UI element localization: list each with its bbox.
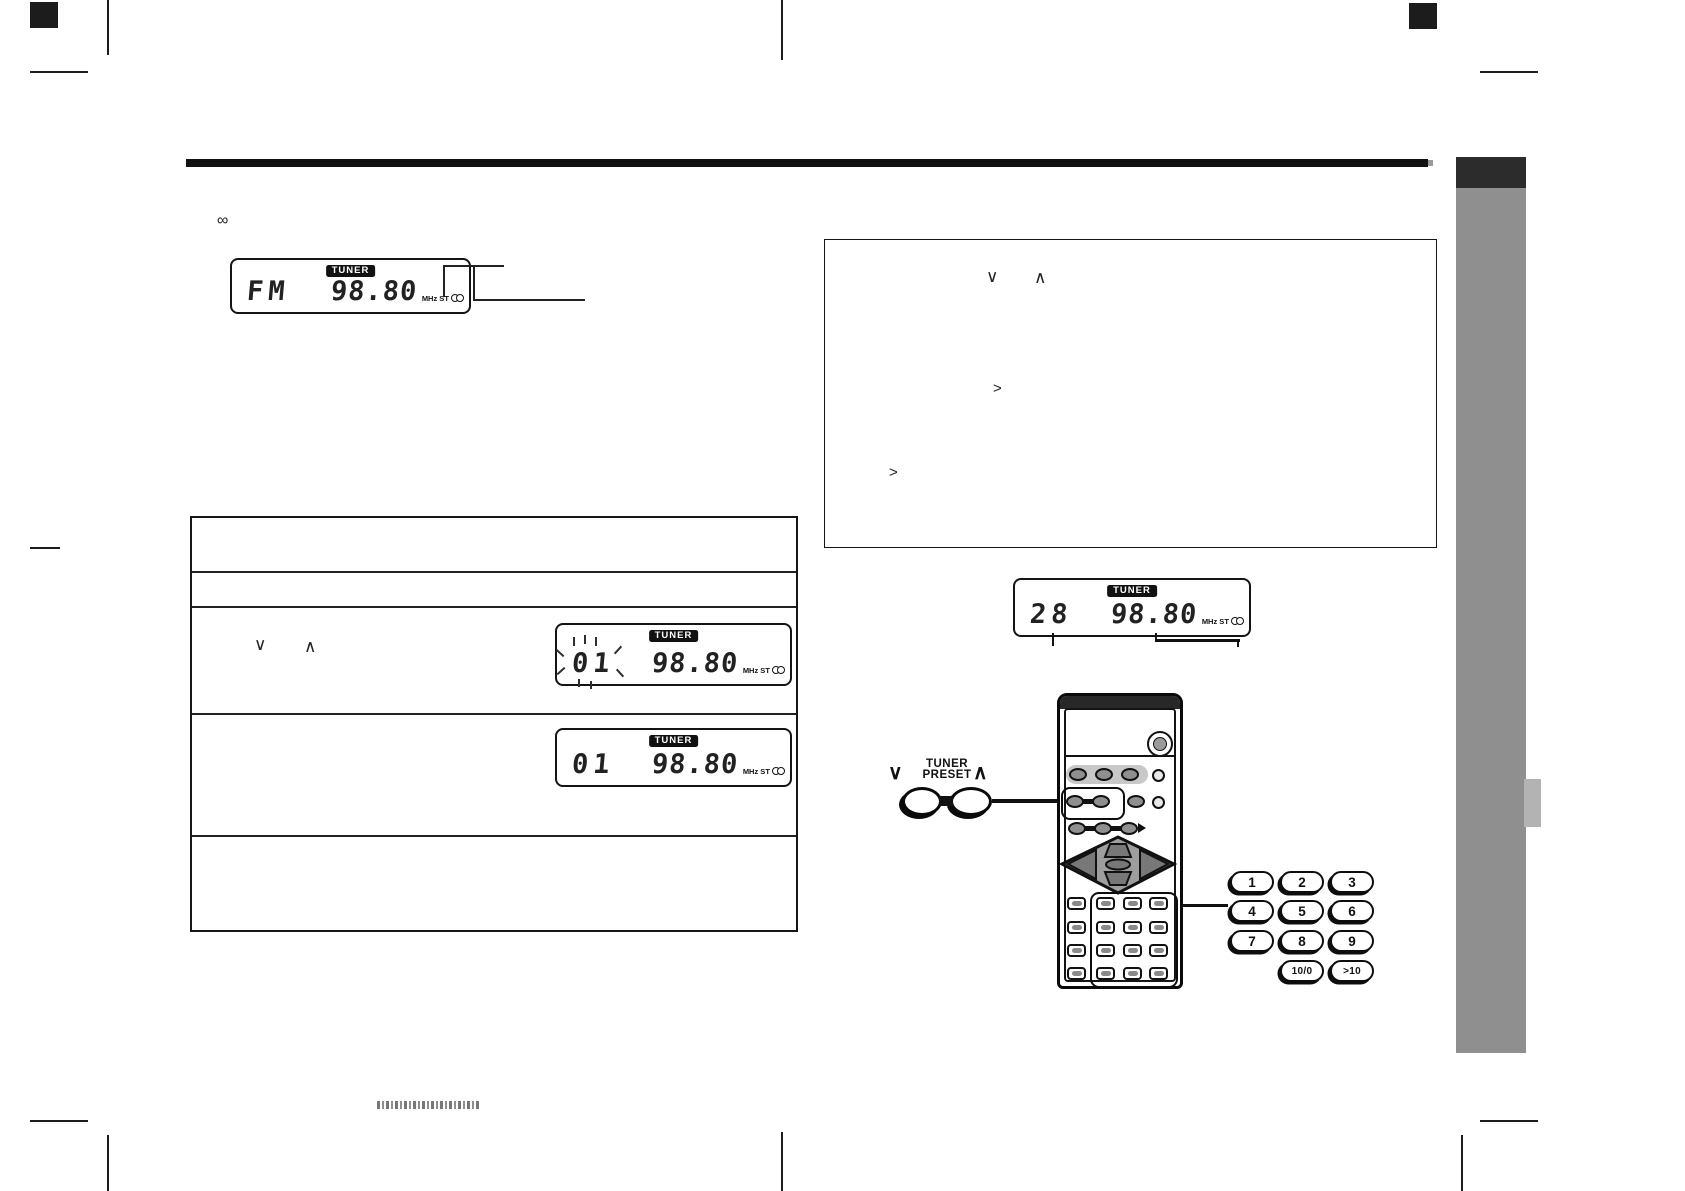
callout-line [1183, 904, 1228, 907]
callout-line [473, 299, 585, 301]
numpad-key-7: 7 [1230, 930, 1274, 952]
numpad-key-2: 2 [1280, 871, 1324, 893]
crop-mark-square-top-right [1409, 3, 1437, 29]
callout-line [1155, 639, 1240, 642]
remote-round-button [1152, 769, 1165, 782]
remote-grid-button [1067, 944, 1086, 957]
lcd-display-preset-28: TUNER 28 98.80 MHz ST [1013, 578, 1251, 637]
crop-mark-line [1480, 71, 1538, 73]
crop-mark-line [30, 547, 60, 549]
power-button-center [1153, 737, 1167, 751]
crop-mark-line [30, 71, 88, 73]
button-connector [1110, 826, 1122, 831]
tuner-badge: TUNER [1107, 585, 1157, 597]
lcd-band-label: FM [246, 276, 291, 307]
chevron-up-icon: ∧ [304, 637, 316, 657]
remote-grid-button [1067, 967, 1086, 980]
table-row-divider [192, 713, 796, 715]
callout-line [443, 265, 445, 297]
chapter-sidebar-thumb-index [1524, 779, 1541, 827]
crop-mark-line [107, 1135, 109, 1191]
skip-arrow-tip [1138, 823, 1146, 833]
section-header-bar-cap [1428, 160, 1433, 166]
lcd-preset-number: 01 [571, 749, 616, 780]
remote-button [1095, 768, 1113, 781]
numpad-key-10-0: 10/0 [1280, 960, 1324, 982]
callout-line [992, 799, 1062, 803]
lcd-frequency: 98.80 [650, 648, 739, 679]
numpad-key-4: 4 [1230, 900, 1274, 922]
stereo-icon [772, 666, 785, 676]
remote-divider [1066, 755, 1174, 757]
crop-mark-line [781, 1132, 783, 1191]
tuner-badge: TUNER [649, 735, 699, 747]
chevron-down-icon: ∨ [888, 760, 903, 785]
table-row-divider [192, 606, 796, 608]
lcd-frequency: 98.80 [1109, 599, 1198, 630]
stereo-icon [451, 294, 464, 304]
nav-up-button [1105, 844, 1131, 857]
tuner-badge: TUNER [649, 630, 699, 642]
crop-mark-square-top-left [30, 2, 58, 28]
crop-mark-line [781, 0, 783, 60]
remote-button [1127, 795, 1145, 808]
callout-line [473, 265, 475, 301]
note-icon: ∞ [217, 212, 228, 230]
stereo-icon [1231, 617, 1244, 627]
lcd-units: MHz ST [743, 767, 785, 777]
button-connector [939, 796, 953, 806]
remote-grid-button [1067, 921, 1086, 934]
lcd-units: MHz ST [743, 666, 785, 676]
numpad-key-gt10: >10 [1330, 960, 1374, 982]
callout-line [1237, 639, 1239, 647]
tuner-preset-up-button [950, 787, 992, 816]
blink-mark [578, 679, 580, 687]
table-row-divider [192, 571, 796, 573]
steps-table [190, 516, 798, 932]
blink-mark [595, 637, 597, 646]
navigation-pad [1056, 834, 1180, 896]
chevron-up-icon: ∧ [973, 760, 988, 785]
numpad-key-3: 3 [1330, 871, 1374, 893]
instruction-panel [824, 239, 1437, 548]
lcd-display-fm: TUNER FM 98.80 MHz ST [230, 258, 471, 314]
chevron-down-icon: ∨ [254, 635, 266, 655]
numpad-key-1: 1 [1230, 871, 1274, 893]
remote-button [1121, 768, 1139, 781]
button-connector [1082, 799, 1094, 804]
chevron-down-icon: ∨ [986, 267, 998, 287]
table-row-divider [192, 835, 796, 837]
crop-mark-line [1461, 1135, 1463, 1191]
chevron-right-icon: > [993, 380, 1002, 397]
crop-mark-line [1480, 1120, 1538, 1122]
blink-mark [590, 681, 592, 689]
chapter-sidebar-tab [1456, 157, 1526, 188]
blink-mark [584, 635, 586, 644]
remote-round-button [1152, 796, 1165, 809]
numpad-key-5: 5 [1280, 900, 1324, 922]
nav-down-button [1105, 872, 1131, 885]
number-buttons-highlight [1090, 892, 1178, 988]
button-connector [1084, 826, 1096, 831]
chevron-up-icon: ∧ [1034, 268, 1046, 288]
lcd-units: MHz ST [1202, 617, 1244, 627]
numpad-key-6: 6 [1330, 900, 1374, 922]
chevron-right-icon: > [889, 464, 898, 481]
lcd-display-preset-blinking: TUNER 01 98.80 MHz ST [555, 623, 792, 686]
lcd-preset-number: 28 [1029, 599, 1074, 630]
blink-mark [573, 637, 575, 646]
tuner-preset-up-button-remote [1092, 795, 1110, 808]
chapter-sidebar [1456, 188, 1526, 1053]
numpad-key-8: 8 [1280, 930, 1324, 952]
nav-center-button [1106, 860, 1130, 870]
lcd-display-preset-stored: TUNER 01 98.80 MHz ST [555, 728, 792, 787]
numpad-key-9: 9 [1330, 930, 1374, 952]
stereo-icon [772, 767, 785, 777]
lcd-preset-number: 01 [571, 648, 616, 679]
crop-mark-line [107, 0, 109, 55]
remote-button [1069, 768, 1087, 781]
tuner-preset-down-button [902, 787, 942, 816]
manual-page: ∞ TUNER FM 98.80 MHz ST ∨ ∧ TUNER 01 98.… [0, 0, 1685, 1191]
crop-mark-line [30, 1120, 88, 1122]
lcd-frequency: 98.80 [650, 749, 739, 780]
callout-line [1052, 633, 1054, 646]
lcd-frequency: 98.80 [329, 276, 418, 307]
section-header-bar [186, 159, 1428, 167]
footer-fine-print [377, 1101, 481, 1109]
remote-grid-button [1067, 897, 1086, 910]
